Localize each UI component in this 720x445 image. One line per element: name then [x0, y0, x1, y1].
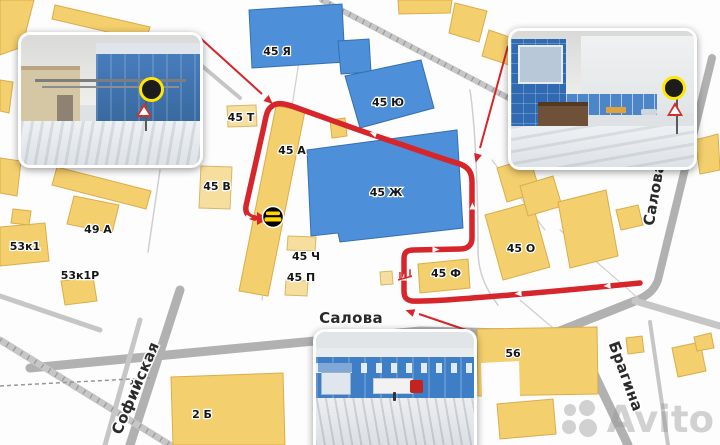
photo3-kiosk [321, 372, 351, 396]
photo-warehouse-driveway [313, 329, 477, 445]
label-45a: 45 А [278, 144, 306, 157]
building [616, 205, 643, 230]
label-56: 56 [505, 347, 521, 360]
photo3-truck-cab [410, 380, 423, 393]
building-45ya-annex [338, 39, 371, 74]
street-salova-vertical: Салова [640, 161, 669, 227]
photo-warehouse-turn [508, 28, 697, 170]
photo3-roofline [316, 348, 474, 358]
building [398, 0, 452, 14]
label-53k1r: 53к1Р [61, 269, 100, 282]
building [0, 158, 21, 196]
building-45ya [249, 4, 345, 68]
label-45v: 45 В [203, 180, 231, 193]
building-56-notch [481, 361, 520, 397]
building [558, 190, 618, 268]
label-45ch: 45 Ч [292, 250, 320, 263]
path-line [148, 170, 160, 252]
logo-text-line-2 [265, 217, 282, 221]
destination-logo [263, 207, 284, 228]
photo1-building-roof-band [96, 43, 200, 55]
label-45zh: 45 Ж [370, 186, 403, 199]
label-2b: 2 Б [192, 408, 212, 421]
road [650, 322, 668, 445]
building-45o [485, 202, 550, 280]
label-45ya: 45 Я [263, 45, 291, 58]
building [694, 333, 714, 351]
map-directions-image: 45 Я 45 Ю 45 Ж 45 Т 45 А 45 В 45 Ч 45 П … [0, 0, 720, 445]
building [11, 209, 31, 225]
photo3-kiosk-canopy [318, 363, 353, 371]
road [635, 301, 720, 326]
photo2-car [641, 109, 657, 116]
barrier-icon [398, 269, 412, 280]
building [695, 134, 720, 174]
photo1-warning-sign [136, 103, 152, 117]
photo2-highlighted-sign [662, 76, 686, 100]
photo3-snow-road [316, 398, 474, 445]
building-45ch [287, 236, 316, 251]
photo-entrance-gate [18, 32, 203, 168]
label-45f: 45 Ф [431, 267, 461, 280]
building [497, 399, 556, 439]
photo2-warning-sign [667, 102, 683, 116]
label-49a: 49 А [84, 223, 112, 236]
photo1-snow-road [21, 121, 200, 165]
label-45t: 45 Т [228, 111, 255, 124]
building [0, 80, 13, 113]
photo3-person [393, 392, 396, 401]
building [626, 336, 644, 354]
photo1-pipe-gantry [35, 79, 185, 82]
label-45yu: 45 Ю [372, 96, 404, 109]
street-salova: Салова [319, 309, 383, 327]
label-45p: 45 П [287, 271, 315, 284]
photo2-crane-truck [606, 107, 626, 112]
label-45o: 45 О [507, 242, 536, 255]
label-53k1: 53к1 [10, 240, 40, 253]
building-2b [171, 373, 285, 445]
building [449, 3, 487, 42]
photo1-highlighted-sign [139, 77, 164, 102]
photo2-snow-road [511, 126, 694, 167]
building [380, 271, 393, 285]
photo2-window [518, 45, 562, 84]
logo-text-line-1 [266, 212, 280, 216]
